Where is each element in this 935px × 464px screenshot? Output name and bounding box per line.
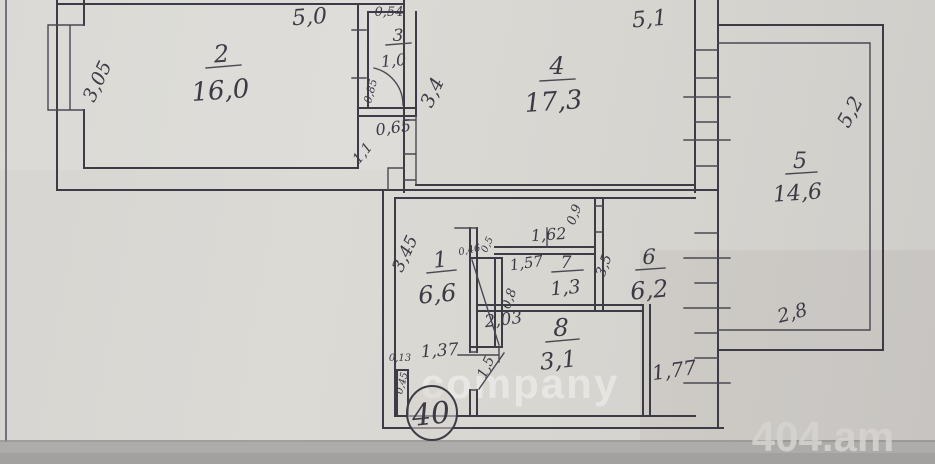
dim-jamb-width: 0,13 (389, 353, 411, 364)
room-2-number: 2 (212, 40, 230, 69)
apartment-number-badge: 40 (407, 386, 457, 440)
room-5-area: 14,6 (772, 179, 823, 207)
watermark-corner: 404.am (752, 413, 894, 460)
room-7-number: 7 (561, 253, 572, 273)
room-6-number: 6 (642, 245, 655, 269)
dim-room5-depth: 5,2 (832, 92, 868, 131)
room-1-area: 6,6 (417, 278, 457, 309)
dim-room4-depth: 3,4 (416, 74, 449, 111)
dim-passage-width: 0,65 (374, 116, 412, 140)
floor-plan-svg: company 404.am (0, 0, 935, 464)
dim-room3-width: 0,54 (375, 5, 404, 20)
room-1-number: 1 (432, 247, 449, 273)
dim-door-room6: 0,9 (564, 203, 585, 228)
room-3-area: 1,0 (380, 50, 407, 71)
dim-room4-width: 5,1 (631, 6, 668, 34)
room-4-number: 4 (548, 52, 564, 80)
dim-bath-width: 1,37 (420, 340, 459, 363)
room-5-number: 5 (793, 149, 807, 174)
dim-closet-depth: 0,5 (479, 235, 496, 254)
room-7-area: 1,3 (549, 276, 581, 301)
floor-plan-scan: company 404.am (0, 0, 935, 464)
apartment-number: 40 (409, 395, 452, 434)
room-5-label: 5 14,6 (772, 149, 823, 208)
room-3-number: 3 (393, 26, 404, 46)
room-2-area: 16,0 (191, 74, 251, 108)
room-7-label: 7 1,3 (549, 253, 583, 300)
room-4-area: 17,3 (524, 85, 584, 119)
dim-closet-width: 0,46 (457, 243, 482, 259)
room-8-area: 3,1 (539, 346, 578, 376)
dim-lobby-width: 1,62 (530, 224, 567, 245)
room-4-label: 4 17,3 (524, 52, 584, 119)
dim-room1-depth: 3,45 (388, 233, 422, 276)
room-1-label: 1 6,6 (417, 247, 457, 309)
dim-room2-width: 5,0 (291, 4, 328, 31)
room-8-number: 8 (553, 314, 568, 342)
room-8-label: 8 3,1 (539, 314, 579, 376)
dim-hall-width: 2,03 (482, 308, 523, 333)
dim-room6-depth: 3,5 (593, 252, 616, 278)
dim-room7-width: 1,57 (509, 252, 545, 275)
room-6-area: 6,2 (629, 274, 669, 305)
